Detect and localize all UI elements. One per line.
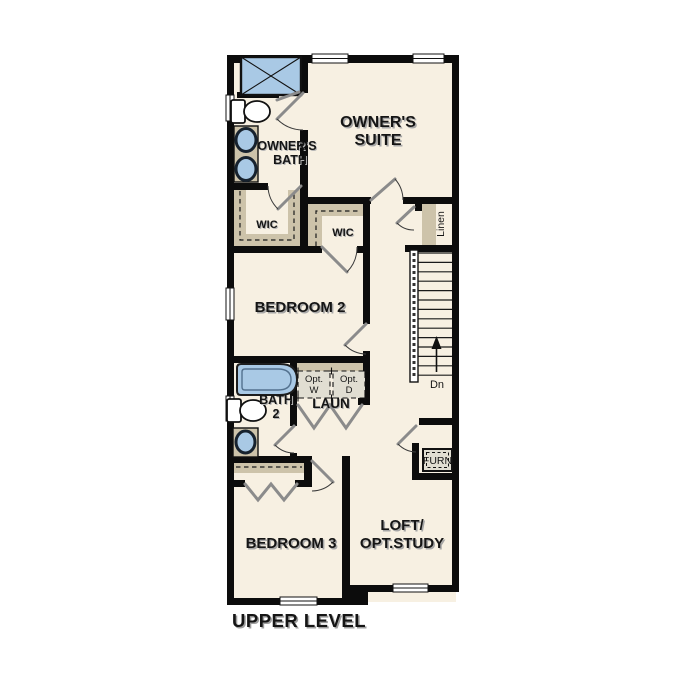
owners-bath-label-2: BATH — [273, 153, 307, 167]
laundry-label: LAUN — [312, 396, 350, 411]
owners-suite-label-1: OWNER'S — [340, 114, 416, 131]
window-bedroom3 — [280, 597, 317, 605]
vanity-bath2 — [233, 428, 258, 457]
owners-bath-label-1: OWNER'S — [257, 139, 316, 153]
sink-icon — [236, 129, 256, 152]
wic-bedroom2-label: WIC — [332, 227, 353, 239]
bedroom3-label: BEDROOM 3 — [246, 535, 337, 552]
linen-label: Linen — [435, 211, 447, 237]
shower — [241, 57, 301, 100]
window-suite-top-left — [312, 54, 348, 63]
stairs-dn-label: Dn — [430, 379, 444, 391]
opt-dryer-label-2: D — [346, 385, 353, 396]
floorplan-svg: OWNER'S SUITE OWNER'S BATH WIC WIC Linen… — [0, 0, 687, 687]
toilet-owners-bath — [231, 100, 270, 123]
bedroom2-label: BEDROOM 2 — [255, 299, 346, 316]
floorplan-page: OWNER'S SUITE OWNER'S BATH WIC WIC Linen… — [0, 0, 687, 687]
bath2-label-2: 2 — [273, 407, 280, 421]
owners-suite-label-2: SUITE — [354, 132, 401, 149]
tub-bath2 — [237, 364, 297, 395]
sink-icon — [236, 158, 256, 181]
opt-washer-label-2: W — [310, 385, 319, 396]
window-suite-top-right — [413, 54, 444, 63]
sink-icon — [236, 431, 255, 453]
furnace-label: FURN — [423, 455, 452, 467]
laundry-shelf — [292, 363, 366, 371]
loft-label-2: OPT.STUDY — [360, 535, 444, 552]
loft-label-1: LOFT/ — [380, 517, 424, 534]
linen-shelf — [422, 204, 436, 245]
wic-owner-label: WIC — [256, 219, 277, 231]
window-bedroom2 — [226, 288, 234, 320]
bath2-label-1: BATH — [259, 393, 293, 407]
window-loft — [393, 584, 428, 592]
page-title: UPPER LEVEL — [232, 610, 366, 631]
opt-washer-label-1: Opt. — [305, 374, 323, 385]
vanity-owners-bath — [234, 126, 258, 182]
opt-dryer-label-1: Opt. — [340, 374, 358, 385]
